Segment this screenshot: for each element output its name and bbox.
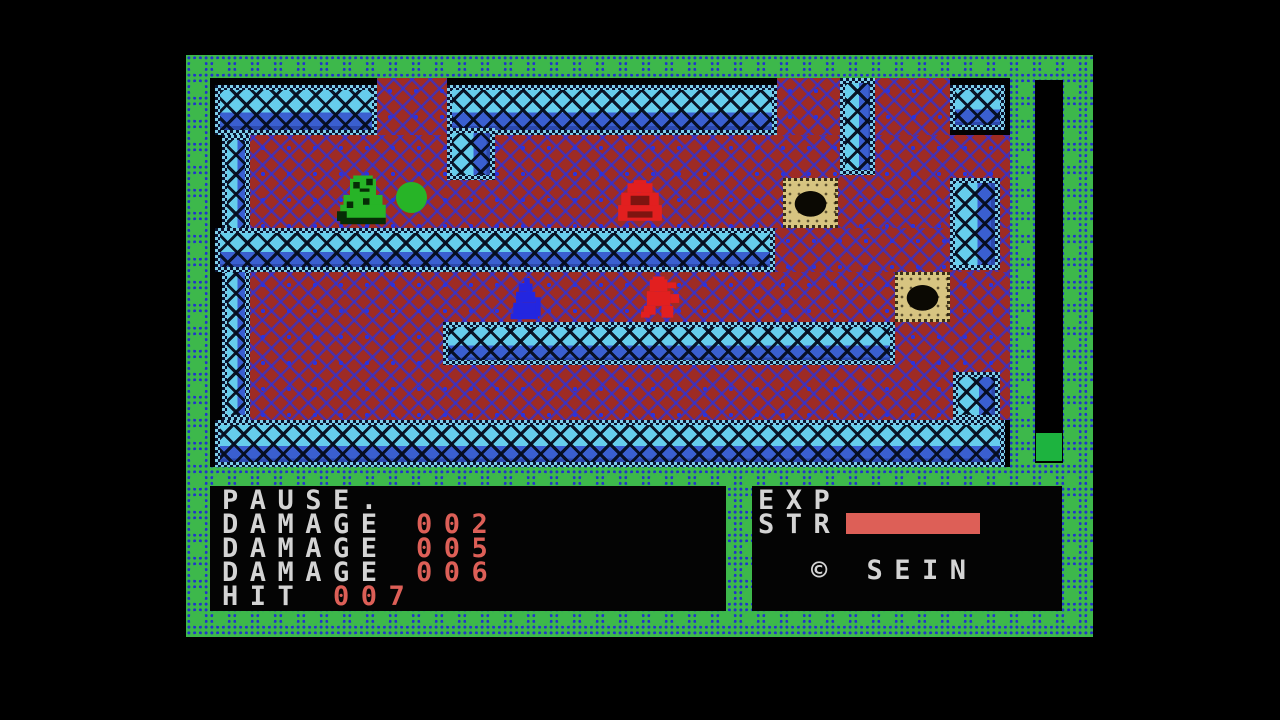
floor-gap-top-2 (777, 78, 840, 138)
wall-top-right (950, 85, 1005, 130)
stone-block-lower (895, 272, 950, 322)
wall-platform (443, 322, 895, 365)
wall-middle-band (215, 228, 775, 272)
str-label: STR (758, 513, 846, 537)
dungeon-map-viewport[interactable] (210, 78, 1010, 467)
game-screen-border: PAUSE. DAMAGE002 DAMAGE005 DAMAGE006 HIT… (186, 55, 1093, 637)
floor-gap-top-3 (875, 78, 950, 138)
wall-top-left (215, 85, 377, 135)
wall-top-middle (447, 85, 777, 135)
enemy-red-blob (615, 176, 665, 228)
wall-bottom-band (215, 420, 1005, 467)
str-bar (846, 513, 980, 534)
floor-gap-top-1 (377, 78, 447, 138)
wall-column-top-center (840, 78, 875, 175)
hit-row: HIT007 (222, 585, 726, 609)
player-sprite[interactable] (337, 175, 389, 228)
game-window: PAUSE. DAMAGE002 DAMAGE005 DAMAGE006 HIT… (0, 0, 1280, 720)
enemy-blue-robed (505, 275, 549, 325)
wall-column-left (222, 135, 250, 420)
message-panel: PAUSE. DAMAGE002 DAMAGE005 DAMAGE006 HIT… (210, 486, 726, 611)
stone-block-upper (783, 178, 838, 228)
wall-stub-under-top (447, 128, 495, 180)
level-gauge (1035, 80, 1063, 463)
str-row: STR (758, 513, 1062, 537)
hit-label: HIT (222, 585, 333, 609)
hit-value: 007 (333, 581, 416, 611)
wall-column-right-upper (950, 178, 1000, 270)
enemy-red-imp (638, 275, 685, 325)
damage-value-3: 006 (416, 557, 499, 588)
credit-text: © SEIN (811, 559, 1062, 583)
status-panel: EXP STR © SEIN (752, 486, 1062, 611)
wall-column-right-lower (953, 372, 1000, 420)
power-orb-icon (396, 182, 427, 213)
level-gauge-fill (1036, 433, 1062, 461)
